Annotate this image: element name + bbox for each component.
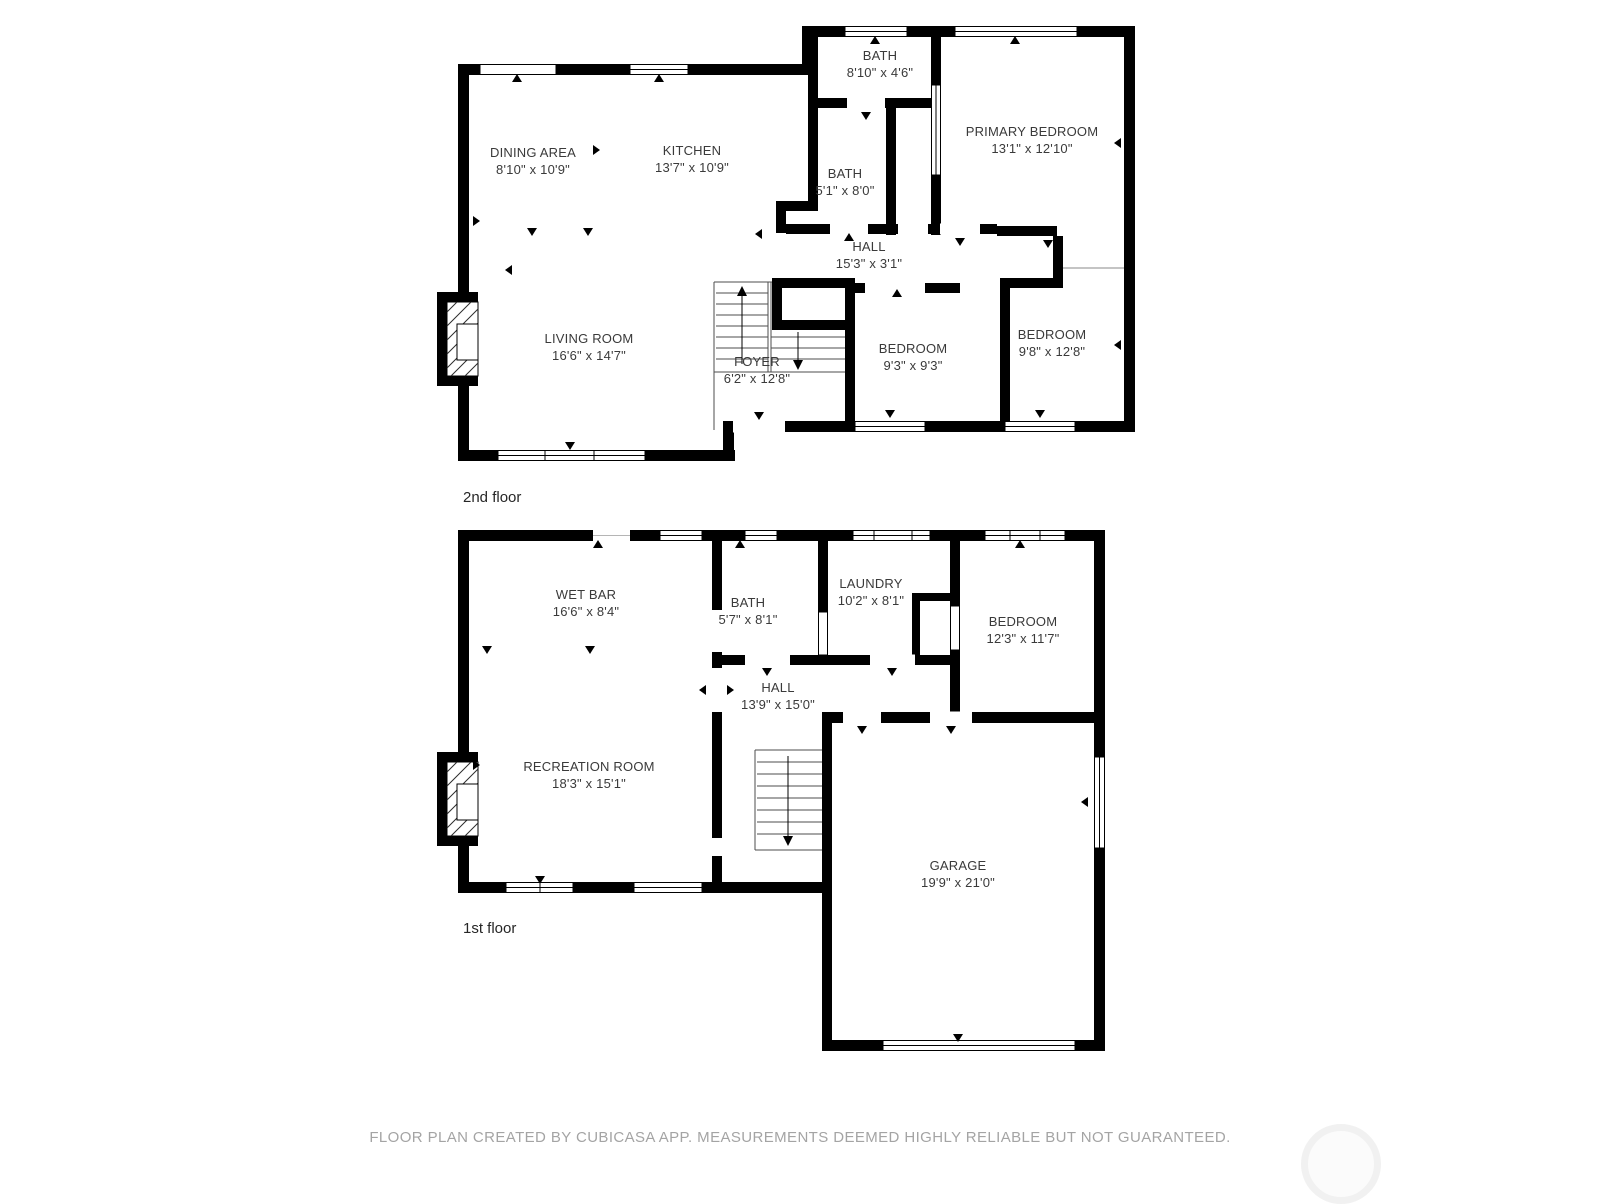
room-label-foyer: FOYER 6'2" x 12'8"	[724, 353, 790, 387]
room-label-bath-1f: BATH 5'7" x 8'1"	[718, 594, 777, 628]
room-label-recreation-room: RECREATION ROOM 18'3" x 15'1"	[523, 758, 654, 792]
room-name: PRIMARY BEDROOM	[966, 123, 1099, 140]
room-label-primary-bedroom: PRIMARY BEDROOM 13'1" x 12'10"	[966, 123, 1099, 157]
room-label-wet-bar: WET BAR 16'6" x 8'4"	[553, 586, 619, 620]
room-name: RECREATION ROOM	[523, 758, 654, 775]
fireplace-icon	[437, 752, 478, 846]
room-name: BATH	[847, 47, 913, 64]
room-name: HALL	[741, 679, 815, 696]
room-dims: 9'3" x 9'3"	[879, 357, 948, 374]
room-label-bath-upper: BATH 8'10" x 4'6"	[847, 47, 913, 81]
room-name: KITCHEN	[655, 142, 729, 159]
floor-label-1st: 1st floor	[463, 920, 516, 937]
room-dims: 8'10" x 4'6"	[847, 64, 913, 81]
room-dims: 19'9" x 21'0"	[921, 874, 995, 891]
room-dims: 8'10" x 10'9"	[490, 161, 576, 178]
room-label-bedroom-93: BEDROOM 9'3" x 9'3"	[879, 340, 948, 374]
second-floor-walls	[458, 26, 1135, 461]
room-dims: 13'1" x 12'10"	[966, 140, 1099, 157]
room-name: BATH	[718, 594, 777, 611]
room-label-bath-small: BATH 5'1" x 8'0"	[815, 165, 874, 199]
room-dims: 18'3" x 15'1"	[523, 775, 654, 792]
room-name: FOYER	[724, 353, 790, 370]
stairs-icon	[755, 750, 822, 850]
room-label-bedroom-1f: BEDROOM 12'3" x 11'7"	[987, 613, 1060, 647]
room-name: BEDROOM	[879, 340, 948, 357]
room-label-bedroom-98: BEDROOM 9'8" x 12'8"	[1018, 326, 1087, 360]
floorplan-canvas	[0, 0, 1600, 1200]
room-label-kitchen: KITCHEN 13'7" x 10'9"	[655, 142, 729, 176]
room-dims: 13'7" x 10'9"	[655, 159, 729, 176]
room-name: BEDROOM	[987, 613, 1060, 630]
room-name: LIVING ROOM	[545, 330, 634, 347]
room-name: WET BAR	[553, 586, 619, 603]
second-floor-windows	[480, 27, 1124, 461]
room-dims: 6'2" x 12'8"	[724, 370, 790, 387]
watermark-logo	[1301, 1124, 1381, 1204]
room-name: BATH	[815, 165, 874, 182]
room-dims: 12'3" x 11'7"	[987, 630, 1060, 647]
room-name: LAUNDRY	[838, 575, 904, 592]
room-dims: 10'2" x 8'1"	[838, 592, 904, 609]
room-label-living-room: LIVING ROOM 16'6" x 14'7"	[545, 330, 634, 364]
room-dims: 16'6" x 8'4"	[553, 603, 619, 620]
room-name: BEDROOM	[1018, 326, 1087, 343]
floor-label-2nd: 2nd floor	[463, 489, 521, 506]
room-name: HALL	[836, 238, 902, 255]
room-dims: 5'7" x 8'1"	[718, 611, 777, 628]
room-label-laundry: LAUNDRY 10'2" x 8'1"	[838, 575, 904, 609]
room-dims: 9'8" x 12'8"	[1018, 343, 1087, 360]
room-name: DINING AREA	[490, 144, 576, 161]
room-label-dining-area: DINING AREA 8'10" x 10'9"	[490, 144, 576, 178]
second-floor-plan	[437, 26, 1135, 461]
room-label-garage: GARAGE 19'9" x 21'0"	[921, 857, 995, 891]
room-dims: 15'3" x 3'1"	[836, 255, 902, 272]
room-label-hall-1f: HALL 13'9" x 15'0"	[741, 679, 815, 713]
room-name: GARAGE	[921, 857, 995, 874]
room-dims: 13'9" x 15'0"	[741, 696, 815, 713]
room-dims: 16'6" x 14'7"	[545, 347, 634, 364]
room-label-hall-2f: HALL 15'3" x 3'1"	[836, 238, 902, 272]
room-dims: 5'1" x 8'0"	[815, 182, 874, 199]
door-ticks-second-floor	[473, 36, 1121, 450]
fireplace-icon	[437, 292, 478, 386]
